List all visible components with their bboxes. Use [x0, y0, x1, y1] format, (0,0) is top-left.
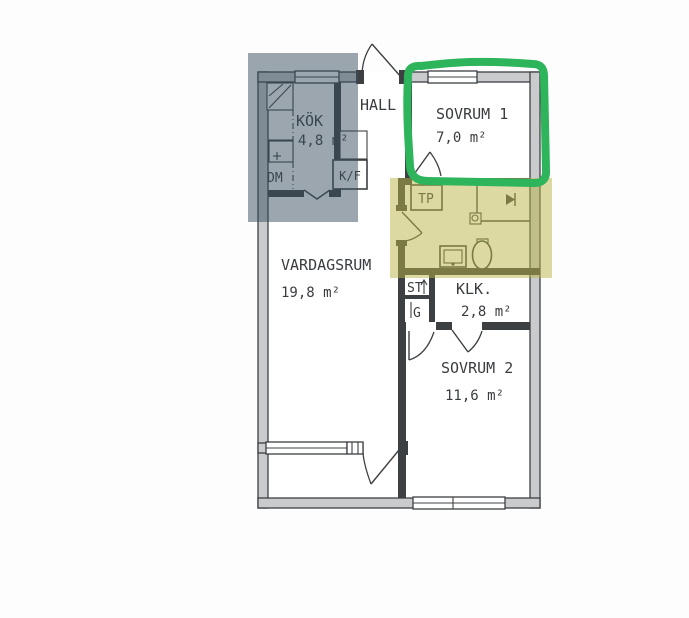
wall-closet-right — [429, 275, 435, 322]
wall-closet-left — [398, 275, 405, 330]
label-vardagsrum: VARDAGSRUM — [281, 256, 371, 274]
label-sovrum2: SOVRUM 2 — [441, 359, 513, 377]
label-klk-area: 2,8 m² — [461, 304, 512, 320]
label-hall: HALL — [360, 96, 396, 114]
label-vardagsrum-area: 19,8 m² — [281, 285, 340, 301]
kitchen-highlight-overlay — [248, 53, 358, 222]
floor-plan: KÖK 4,8 m² HALL SOVRUM 1 7,0 m² VARDAGSR… — [0, 0, 689, 618]
label-sovrum2-area: 11,6 m² — [445, 388, 504, 404]
balcony-door-jamb — [398, 441, 408, 455]
label-sovrum1-area: 7,0 m² — [436, 130, 487, 146]
livingroom-side-pane — [347, 442, 363, 454]
label-g: G — [413, 306, 421, 321]
label-klk: KLK. — [456, 280, 492, 298]
wall-closet-bottom-c — [482, 322, 530, 330]
label-st: ST — [407, 281, 423, 296]
wall-bedroom2-left — [398, 330, 406, 498]
wall-closet-bottom-b — [436, 322, 452, 330]
wall-closet-bottom-a — [398, 322, 406, 330]
floor-plan-canvas: KÖK 4,8 m² HALL SOVRUM 1 7,0 m² VARDAGSR… — [0, 0, 689, 618]
label-sovrum1: SOVRUM 1 — [436, 105, 508, 123]
bathroom-highlight-overlay — [390, 178, 552, 278]
wall-right — [530, 72, 540, 508]
